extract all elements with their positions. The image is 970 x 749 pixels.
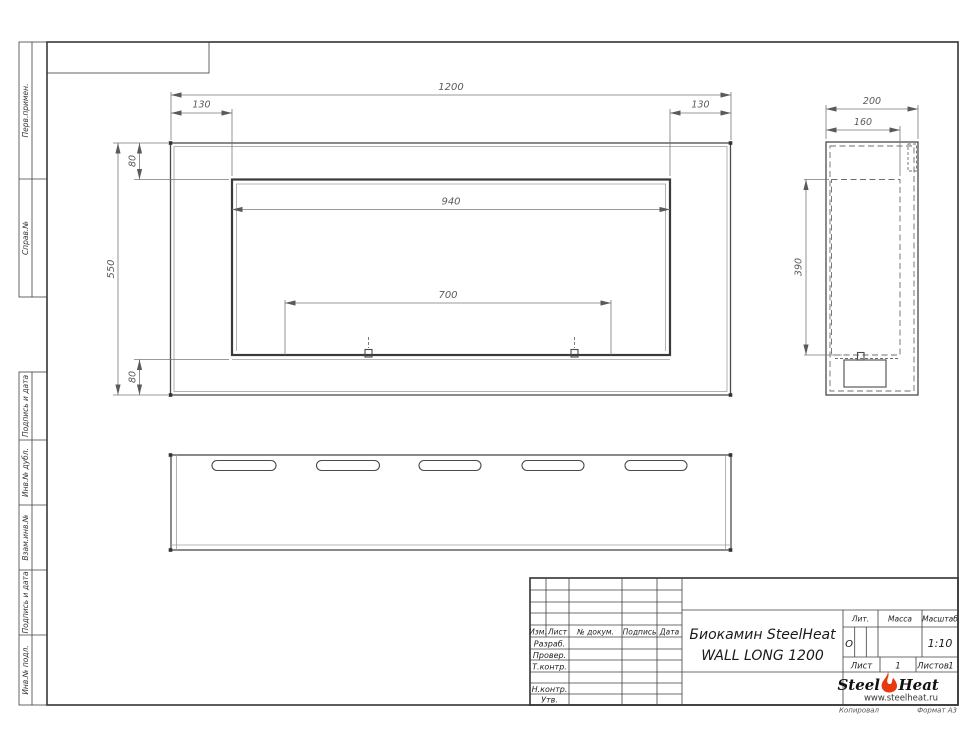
footer-format: Формат А3 [917, 707, 957, 715]
logo-text-steel: Steel [837, 676, 880, 694]
tb-sheet-value: 1 [895, 662, 900, 672]
tb-col-data: Дата [659, 628, 680, 637]
dim-front-burner-span: 700 [438, 290, 457, 301]
dim-front-left-offset: 130 [192, 100, 210, 111]
doc-title-line1: Биокамин SteelHeat [689, 627, 836, 643]
tb-col-list: Лист [547, 628, 568, 637]
footer-kopiroval: Копировал [839, 707, 880, 715]
logo-website: www.steelheat.ru [864, 694, 938, 704]
tb-row-tkontr: Т.контр. [532, 663, 567, 672]
margin-label-perv-primen: Перв.примен. [21, 84, 30, 138]
tb-row-prover: Провер. [533, 651, 566, 660]
dim-front-height: 550 [106, 259, 117, 278]
tb-scale-label: Масштаб [922, 615, 958, 624]
tb-row-utv: Утв. [541, 696, 558, 705]
logo-text-heat: Heat [898, 676, 939, 694]
mount-bracket-hidden [908, 144, 917, 171]
vent-slot-4 [522, 461, 584, 471]
doc-title-line2: WALL LONG 1200 [701, 648, 824, 664]
sheet-frame [47, 42, 958, 705]
drawing-canvas: Перв.примен. Справ.№ Подпись и дата Инв.… [0, 0, 970, 749]
side-view-dimensions: 200 160 390 [794, 96, 919, 355]
tb-sheets-label: Листов [916, 662, 949, 672]
side-view [826, 142, 918, 395]
dim-front-opening-width: 940 [441, 197, 460, 208]
vent-slot-3 [419, 461, 481, 471]
tb-scale-value: 1:10 [928, 637, 953, 650]
tb-mass-label: Масса [888, 615, 912, 624]
tb-sheets-value: 1 [948, 662, 953, 672]
dim-side-opening-height: 390 [794, 258, 805, 276]
tb-lit-label: Лит. [851, 615, 869, 624]
margin-label-inv-dubl: Инв.№ дубл. [21, 448, 30, 497]
margin-label-podpis-data-2: Подпись и дата [21, 571, 30, 634]
vent-slot-2 [317, 461, 380, 471]
designation-stamp [47, 42, 209, 73]
drawing-sheet: Перв.примен. Справ.№ Подпись и дата Инв.… [0, 0, 970, 749]
margin-label-column: Перв.примен. Справ.№ Подпись и дата Инв.… [19, 42, 47, 705]
vent-slot-5 [625, 461, 687, 471]
dim-front-width: 1200 [438, 82, 463, 93]
sheet-footer: Копировал Формат А3 [839, 707, 957, 715]
margin-label-vzam-inv: Взам.инв.№ [21, 514, 30, 560]
margin-label-sprav-no: Справ.№ [21, 221, 30, 255]
burner-box [844, 353, 886, 388]
dim-side-inner-depth: 160 [854, 117, 872, 128]
tb-row-nkontr: Н.контр. [532, 685, 568, 694]
bottom-view [169, 453, 733, 552]
tb-col-izm: Изм. [529, 628, 547, 637]
dim-front-bottom-flange: 80 [128, 371, 139, 383]
dim-side-depth: 200 [863, 96, 881, 107]
tb-sheet-label: Лист [850, 662, 874, 672]
tb-col-podpis: Подпись [623, 628, 657, 637]
dim-front-top-flange: 80 [128, 155, 139, 167]
brand-logo: Steel Heat www.steelheat.ru [837, 672, 938, 704]
margin-label-podpis-data-1: Подпись и дата [21, 375, 30, 438]
tb-lit-value: О [845, 639, 853, 650]
flame-icon [882, 672, 897, 693]
front-view-dimensions: 1200 130 130 80 550 80 940 700 [106, 82, 731, 395]
tb-col-dokum: № докум. [576, 628, 614, 637]
vent-slot-1 [212, 461, 276, 471]
front-view [169, 141, 733, 397]
margin-label-inv-podl: Инв.№ подл. [21, 645, 30, 694]
dim-front-right-offset: 130 [691, 100, 709, 111]
tb-row-razrab: Разраб. [534, 640, 565, 649]
